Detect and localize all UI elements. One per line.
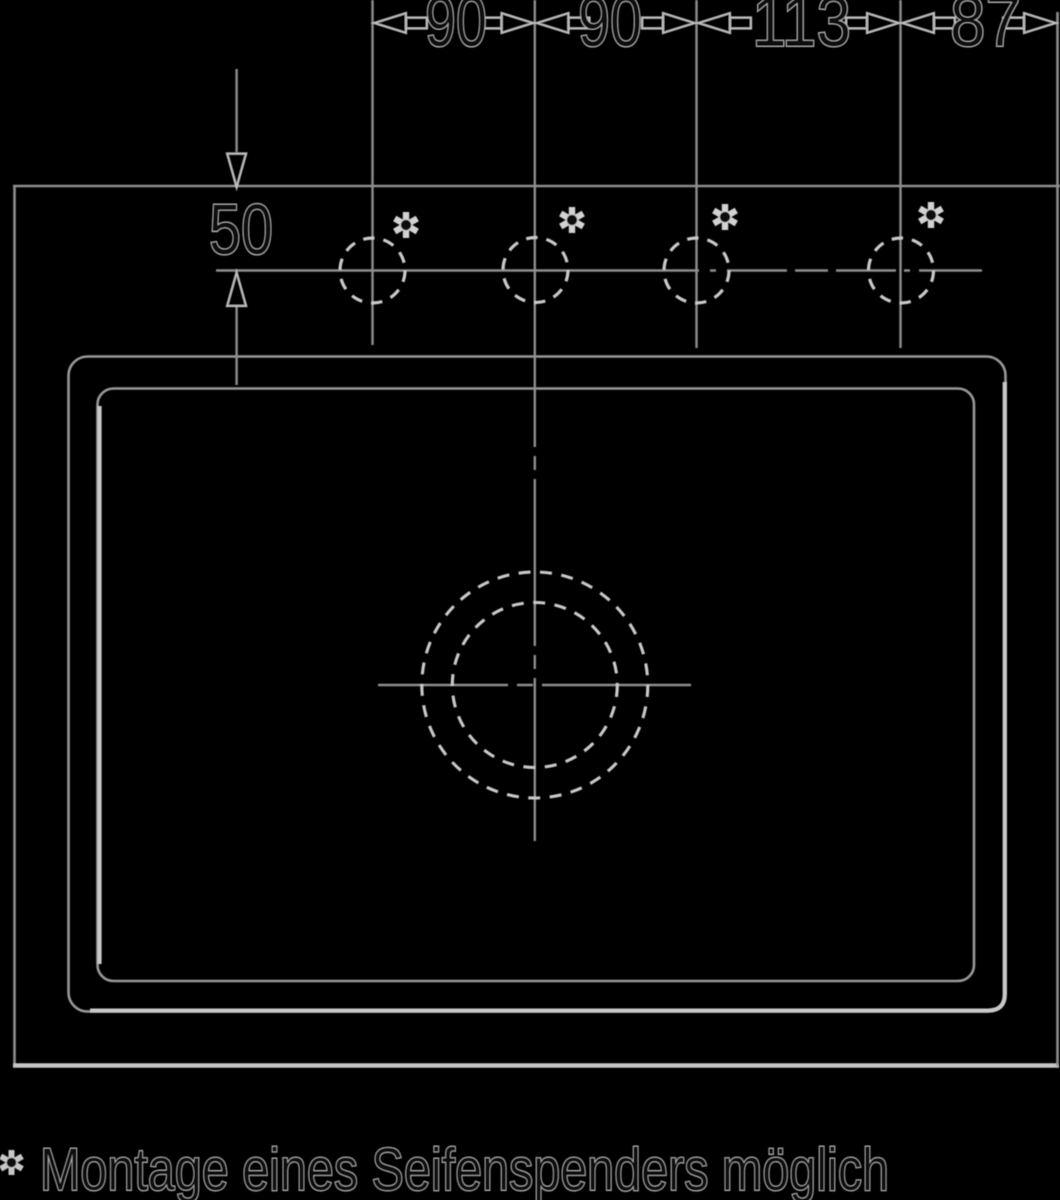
svg-text:87: 87 xyxy=(950,0,1021,62)
svg-text:90: 90 xyxy=(425,0,487,62)
svg-text:113: 113 xyxy=(752,0,851,62)
svg-text:50: 50 xyxy=(209,191,273,270)
svg-text:90: 90 xyxy=(578,0,642,62)
svg-text:Montage eines Seifenspenders m: Montage eines Seifenspenders möglich xyxy=(40,1136,889,1200)
